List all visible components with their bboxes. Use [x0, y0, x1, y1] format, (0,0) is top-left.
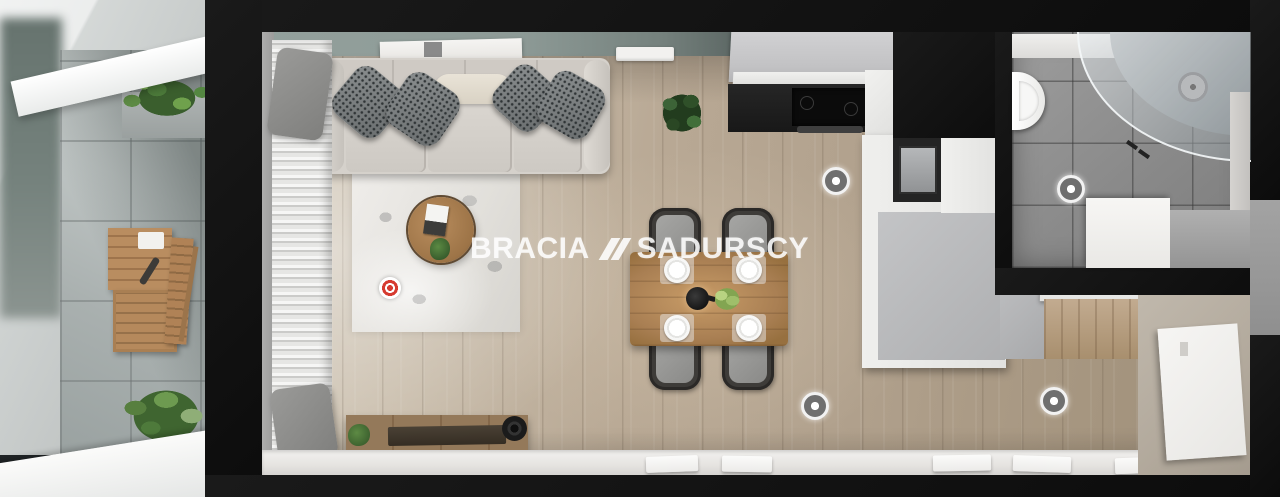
watermark: BRACIA SADURSCY	[470, 232, 809, 266]
sill-book	[1013, 455, 1072, 473]
sill-book	[646, 455, 699, 473]
bathroom-vanity	[1086, 198, 1170, 268]
exterior-wall-blurred	[0, 18, 62, 318]
vinyl-record	[502, 416, 527, 441]
ceiling-spotlight-icon	[1040, 387, 1068, 415]
wall-bathroom-bottom	[995, 268, 1280, 295]
bathroom-counter	[1170, 210, 1250, 268]
plate	[736, 315, 762, 341]
wall-right-bottom	[1250, 335, 1280, 497]
apartment-floorplan-render: BRACIA SADURSCY	[0, 0, 1280, 497]
wall-bottom	[205, 475, 1280, 497]
console-tray	[388, 425, 506, 446]
tall-unit-top-extension	[1000, 285, 1044, 359]
potted-plant	[652, 84, 712, 142]
sill-book	[722, 456, 772, 473]
ceiling-spotlight-icon	[822, 167, 850, 195]
coffee-table-plant	[430, 238, 450, 260]
watermark-brand-left: BRACIA	[470, 232, 590, 266]
cabinet-handle	[797, 126, 863, 133]
ceiling-spotlight-icon	[801, 392, 829, 420]
ceiling-spotlight-icon	[1057, 175, 1085, 203]
tall-unit-top	[878, 212, 1005, 360]
rain-shower-head	[1178, 72, 1208, 102]
coffee-table-book	[423, 204, 449, 237]
oven-door	[899, 146, 937, 194]
plate	[664, 315, 690, 341]
wall-left	[205, 0, 262, 497]
cooktop-burner	[800, 96, 814, 110]
counter-peninsula-front	[1044, 299, 1138, 359]
brand-logo-icon	[600, 238, 627, 260]
ceiling-lamp-box	[424, 42, 442, 57]
console-plant	[348, 424, 370, 446]
wall-top	[205, 0, 1280, 32]
bathroom-wall-right	[1230, 92, 1250, 210]
wall-radiator-panel	[1157, 323, 1246, 460]
wall-bathroom-left	[995, 32, 1012, 295]
balcony-tray	[138, 232, 164, 249]
watermark-brand-right: SADURSCY	[637, 232, 809, 266]
radiator-valve	[1180, 342, 1188, 356]
exterior-background-right	[1250, 200, 1280, 335]
wall-vent-panel	[616, 47, 674, 61]
red-marker-icon	[379, 277, 401, 299]
wall-right-top	[1250, 0, 1280, 200]
cooktop-burner	[844, 102, 858, 116]
sill-book	[933, 454, 991, 471]
